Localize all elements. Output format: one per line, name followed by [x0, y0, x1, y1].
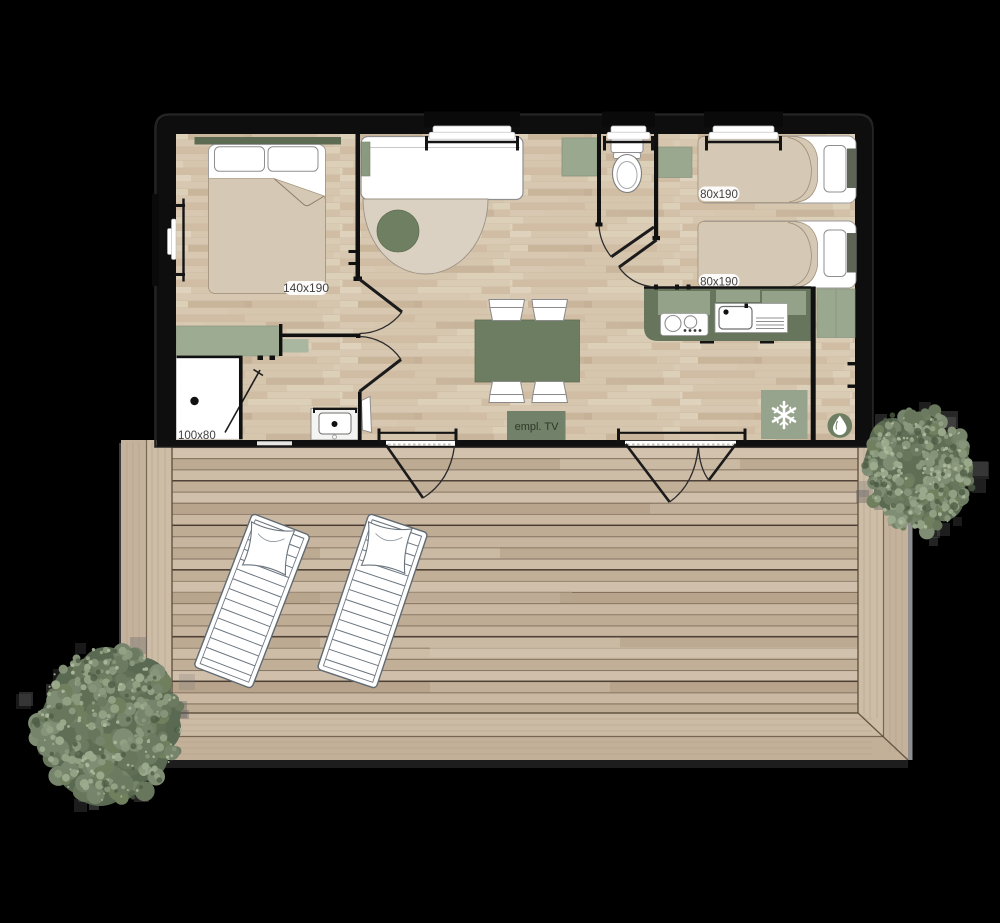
- svg-text:140x190: 140x190: [283, 281, 329, 295]
- svg-text:80x190: 80x190: [700, 189, 738, 201]
- svg-text:empl. TV: empl. TV: [515, 421, 559, 433]
